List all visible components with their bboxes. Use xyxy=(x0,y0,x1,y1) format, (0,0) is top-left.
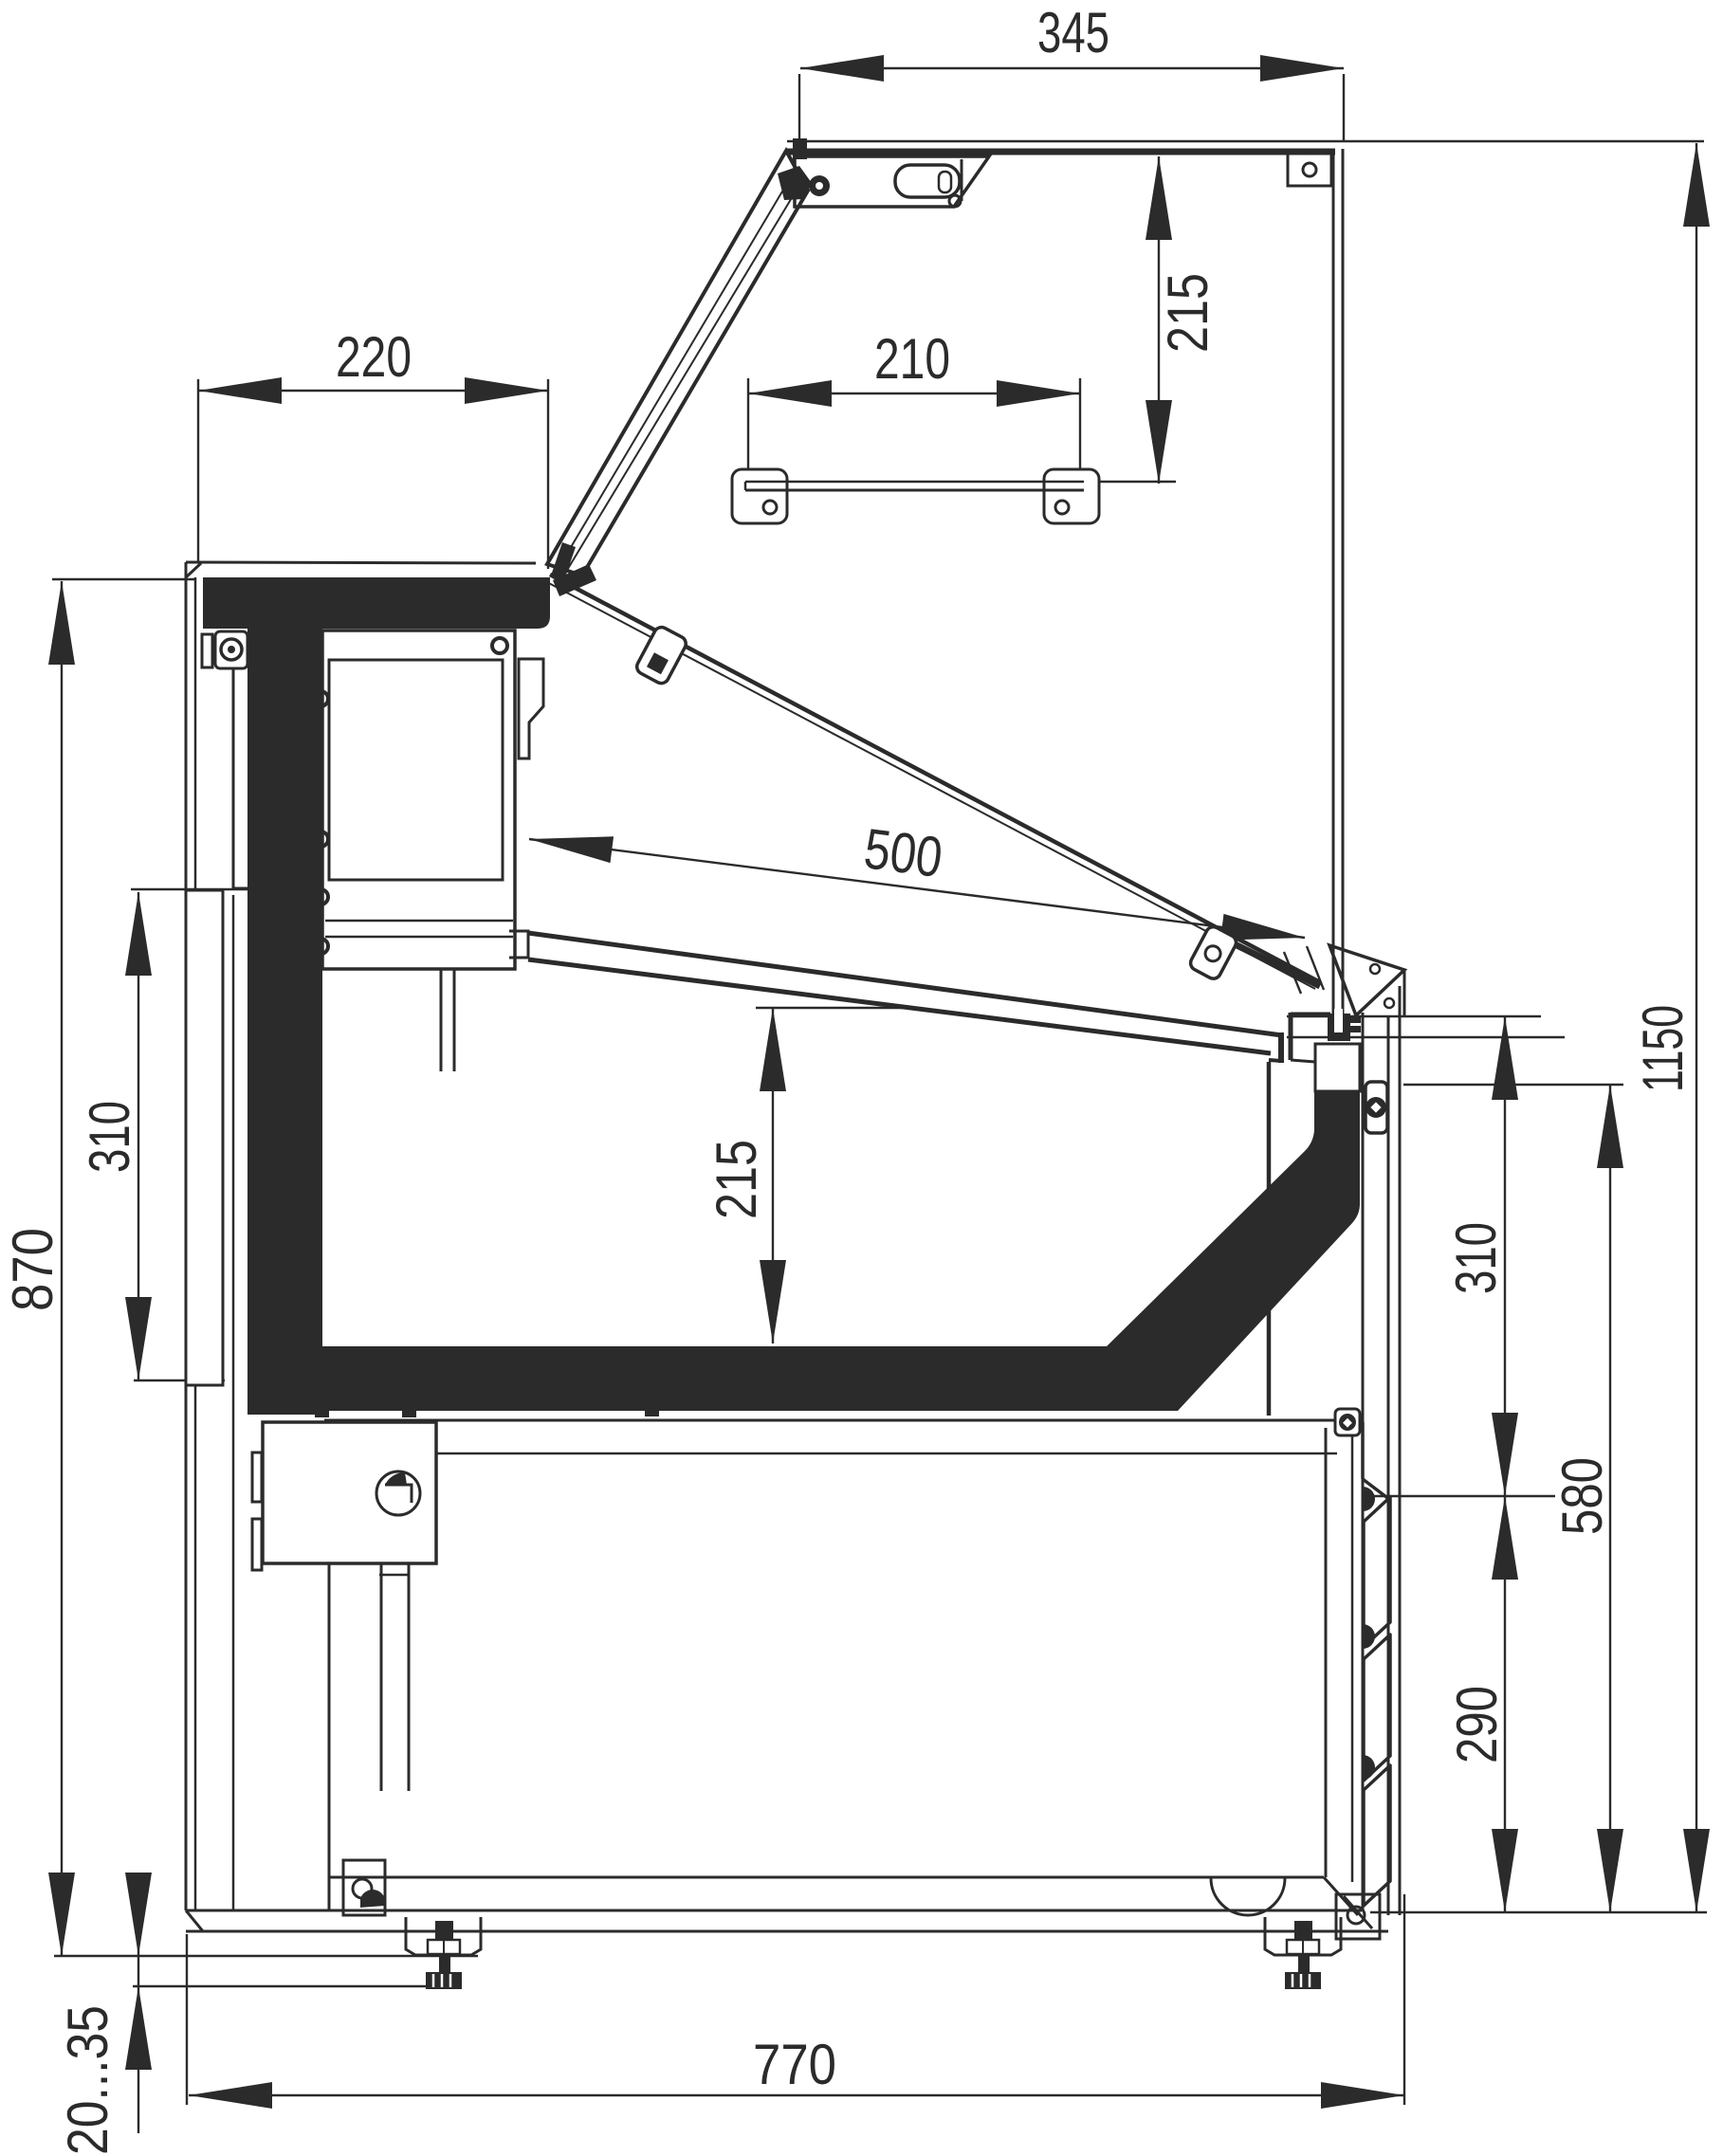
svg-text:345: 345 xyxy=(1037,1,1109,64)
svg-text:215: 215 xyxy=(1156,273,1219,353)
svg-text:500: 500 xyxy=(861,816,946,889)
svg-text:290: 290 xyxy=(1445,1686,1509,1763)
svg-text:770: 770 xyxy=(753,2033,836,2096)
svg-text:310: 310 xyxy=(1444,1222,1508,1294)
svg-text:580: 580 xyxy=(1550,1457,1614,1535)
svg-text:210: 210 xyxy=(874,327,950,391)
svg-text:215: 215 xyxy=(705,1140,768,1219)
svg-text:220: 220 xyxy=(336,325,412,389)
svg-text:1150: 1150 xyxy=(1631,1005,1695,1092)
svg-text:20...35: 20...35 xyxy=(56,2005,119,2155)
svg-text:870: 870 xyxy=(1,1228,64,1311)
svg-text:310: 310 xyxy=(78,1101,141,1173)
